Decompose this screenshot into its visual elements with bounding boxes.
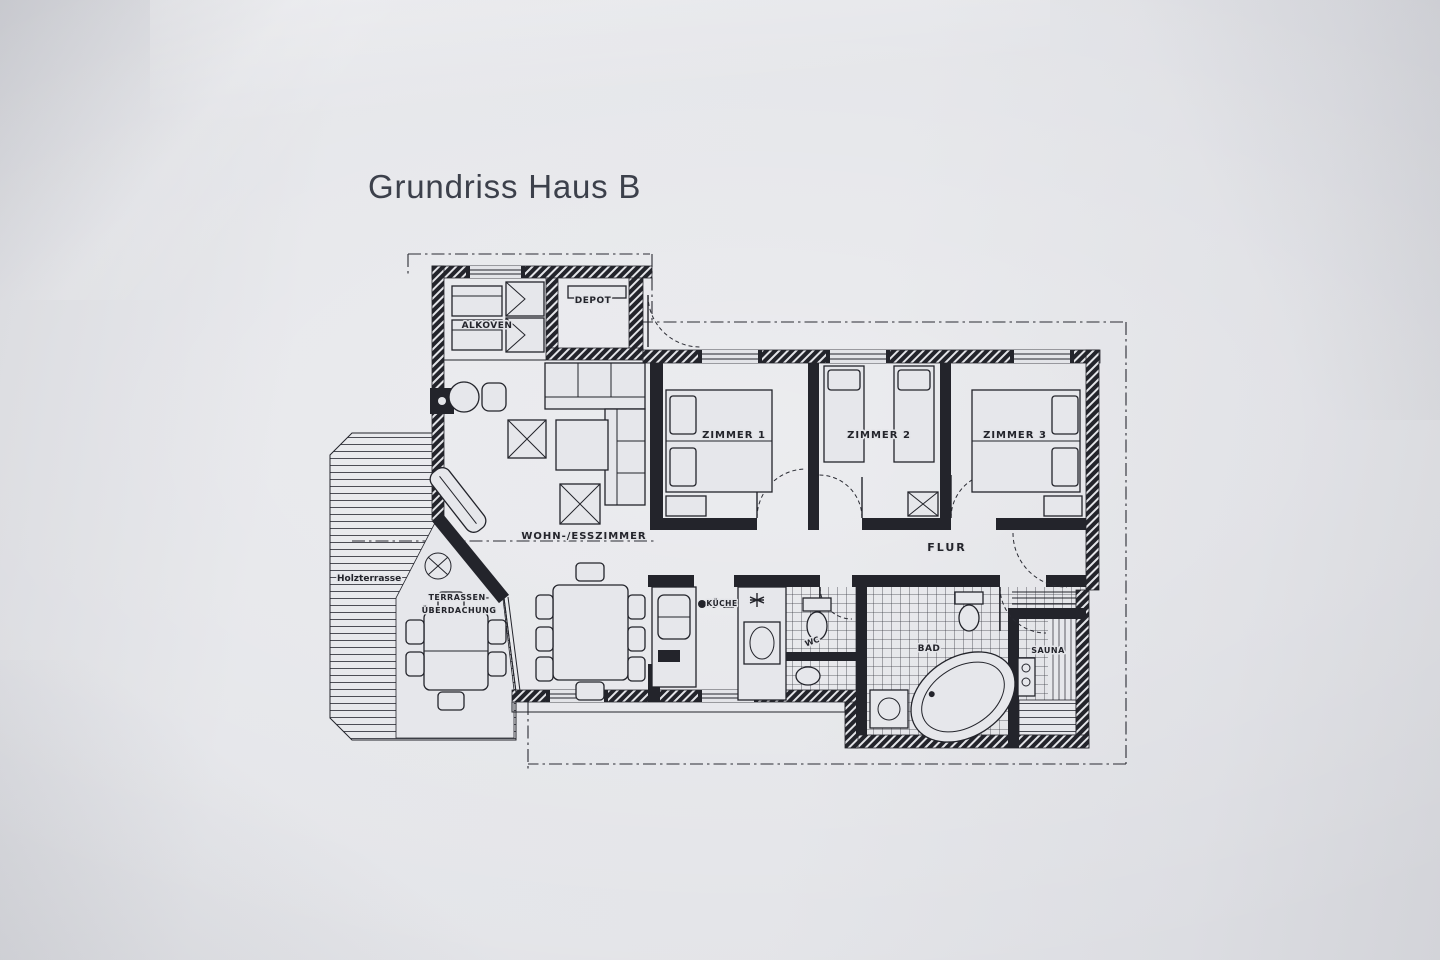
- paper-sheet: Grundriss Haus B: [0, 0, 1440, 960]
- label-terrasse-2: ÜBERDACHUNG: [422, 605, 497, 615]
- sauna-heater-icon: [1018, 658, 1035, 696]
- label-zimmer2: ZIMMER 2: [847, 430, 911, 441]
- label-zimmer1: ZIMMER 1: [702, 430, 766, 441]
- label-zimmer3: ZIMMER 3: [983, 430, 1047, 441]
- alcove-beds-icon: [452, 286, 502, 350]
- dining-table-icon: [536, 563, 645, 700]
- double-bed2-icon: [972, 390, 1082, 516]
- label-kueche: KÜCHE: [706, 599, 737, 608]
- entrance-door: [648, 295, 700, 347]
- window-zimmer3: [1010, 350, 1074, 363]
- duct-shaft-icon: [908, 492, 938, 516]
- label-terrasse-1: TERRASSEN-: [428, 593, 489, 602]
- round-table-icon: [449, 382, 506, 412]
- label-alkoven: ALKOVEN: [462, 321, 513, 331]
- label-flur: FLUR: [927, 541, 967, 554]
- label-depot: DEPOT: [575, 296, 612, 306]
- washing-machine-icon: [870, 690, 908, 728]
- label-bad: BAD: [918, 644, 941, 654]
- alcove-closet-icon: [506, 282, 544, 352]
- wc-sink-icon: [796, 667, 820, 685]
- label-sauna: SAUNA: [1031, 646, 1065, 655]
- window-alkoven: [466, 266, 525, 278]
- window-zimmer2: [826, 350, 890, 363]
- coffee-table-icon: [556, 420, 608, 470]
- single-beds-icon: [824, 366, 934, 462]
- side-table-icon: [508, 420, 546, 458]
- label-wohnzimmer: WOHN-/ESSZIMMER: [521, 531, 646, 542]
- window-zimmer1: [698, 350, 762, 363]
- door-zimmer2: [819, 475, 862, 518]
- label-holzterrasse: Holzterrasse: [337, 574, 401, 584]
- double-bed-icon: [666, 390, 772, 516]
- floor-plan: ALKOVEN DEPOT ZIMMER 1 ZIMMER 2 ZIMMER 3…: [0, 0, 1440, 960]
- side-table2-icon: [560, 484, 600, 524]
